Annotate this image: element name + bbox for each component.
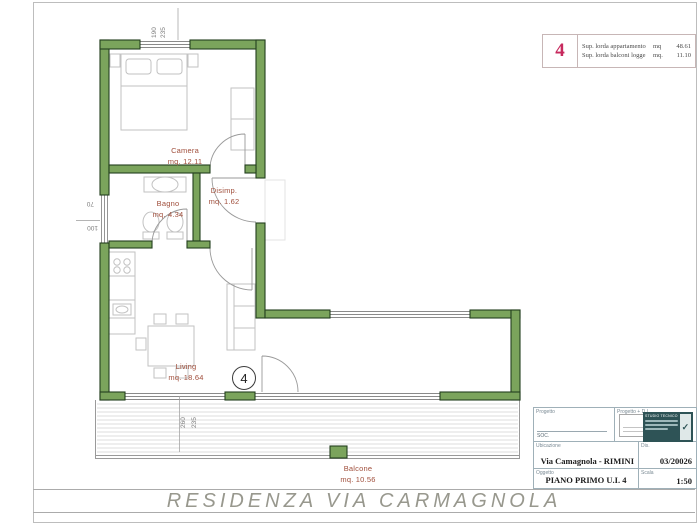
cell-progetto: Progetto SOC. — [534, 408, 615, 441]
dis-value: 03/20026 — [660, 456, 692, 466]
title-block: Progetto SOC. Progetto + D.L. STUDIO TEC… — [533, 407, 697, 489]
room-label-balcone: Balcone mq. 10.56 — [321, 464, 395, 485]
summary-value: 11.10 — [669, 52, 691, 59]
residence-title: RESIDENZA VIA CARMAGNOLA — [167, 490, 562, 513]
room-label-living: Living mq. 18.64 — [149, 362, 223, 383]
room-name: Living — [149, 362, 223, 373]
room-area: mq. 12.11 — [148, 157, 222, 168]
room-label-camera: Camera mq. 12.11 — [148, 146, 222, 167]
dim-bottom-235: 235 — [191, 417, 198, 428]
bathroom-sink — [144, 177, 186, 192]
summary-row-appartamento: Sup. lorda appartamento mq 48.61 — [582, 43, 691, 50]
studio-tecnico-logo: STUDIO TECNICO ✓ — [643, 412, 693, 442]
studio-name: STUDIO TECNICO — [645, 414, 678, 418]
room-name: Disimp. — [194, 186, 254, 197]
dis-label: Dis. — [641, 443, 650, 449]
cell-oggetto: Oggetto PIANO PRIMO U.I. 4 — [534, 469, 639, 488]
summary-unit-number: 4 — [543, 35, 578, 67]
dim-bottom-260: 260 — [180, 417, 187, 428]
progetto-note: SOC. — [537, 433, 549, 439]
title-block-row-3: Oggetto PIANO PRIMO U.I. 4 Scala 1:50 — [534, 469, 696, 488]
room-area: mq. 4.34 — [131, 210, 205, 221]
dim-top-190: 190 — [151, 27, 158, 38]
summary-unit: mq — [653, 43, 669, 50]
studio-address-line — [645, 424, 678, 426]
bed — [110, 54, 198, 130]
title-block-row-1: Progetto SOC. Progetto + D.L. STUDIO TEC… — [534, 408, 696, 442]
room-area: mq. 1.62 — [194, 197, 254, 208]
balcony-outline — [96, 400, 520, 459]
summary-label: Sup. lorda balconi logge — [582, 52, 653, 59]
cell-dis: Dis. 03/20026 — [639, 442, 696, 468]
footer-title-band: RESIDENZA VIA CARMAGNOLA — [33, 489, 695, 513]
kitchen-counter — [109, 252, 135, 334]
dim-left-100: 100 — [87, 224, 98, 231]
balcony-hatch — [97, 404, 518, 452]
dim-top-235: 235 — [160, 27, 167, 38]
summary-unit: mq. — [653, 52, 669, 59]
adjacent-unit-ghost — [265, 180, 285, 240]
cell-progetto-dl: Progetto + D.L. STUDIO TECNICO ✓ — [615, 408, 696, 441]
studio-logo-text-col: STUDIO TECNICO — [645, 414, 678, 440]
room-area: mq. 18.64 — [149, 373, 223, 384]
room-label-disimpegno: Disimp. mq. 1.62 — [194, 186, 254, 207]
room-name: Camera — [148, 146, 222, 157]
summary-row-balconi: Sup. lorda balconi logge mq. 11.10 — [582, 52, 691, 59]
cell-ubicazione: Ubicazione Via Camagnola - RIMINI — [534, 442, 639, 468]
unit-number-text: 4 — [240, 371, 247, 386]
studio-address-line — [645, 420, 678, 422]
studio-logo-checkmark-icon: ✓ — [680, 414, 691, 440]
balcony-door-arc — [262, 356, 298, 392]
sofa — [227, 284, 255, 350]
summary-label: Sup. lorda appartamento — [582, 43, 653, 50]
drawing-sheet: 190 235 70 100 260 235 Camera mq. 12.11 … — [0, 0, 700, 525]
scala-value: 1:50 — [676, 476, 692, 486]
dim-left-70: 70 — [86, 200, 94, 207]
ubicazione-value: Via Camagnola - RIMINI — [541, 456, 634, 466]
unit-number-marker: 4 — [232, 366, 256, 390]
wardrobe — [231, 88, 254, 150]
cell-scala: Scala 1:50 — [639, 469, 696, 488]
title-block-row-2: Ubicazione Via Camagnola - RIMINI Dis. 0… — [534, 442, 696, 469]
studio-address-line — [645, 428, 668, 430]
summary-value: 48.61 — [669, 43, 691, 50]
ubicazione-label: Ubicazione — [536, 443, 561, 449]
area-summary-box: 4 Sup. lorda appartamento mq 48.61 Sup. … — [542, 34, 696, 68]
summary-rows: Sup. lorda appartamento mq 48.61 Sup. lo… — [578, 35, 695, 67]
room-area: mq. 10.56 — [321, 475, 395, 486]
scala-label: Scala — [641, 470, 654, 476]
progetto-label: Progetto — [536, 409, 555, 415]
oggetto-value: PIANO PRIMO U.I. 4 — [534, 475, 638, 485]
balcony-pillar — [330, 446, 347, 458]
room-name: Balcone — [321, 464, 395, 475]
progetto-divider — [537, 431, 607, 432]
